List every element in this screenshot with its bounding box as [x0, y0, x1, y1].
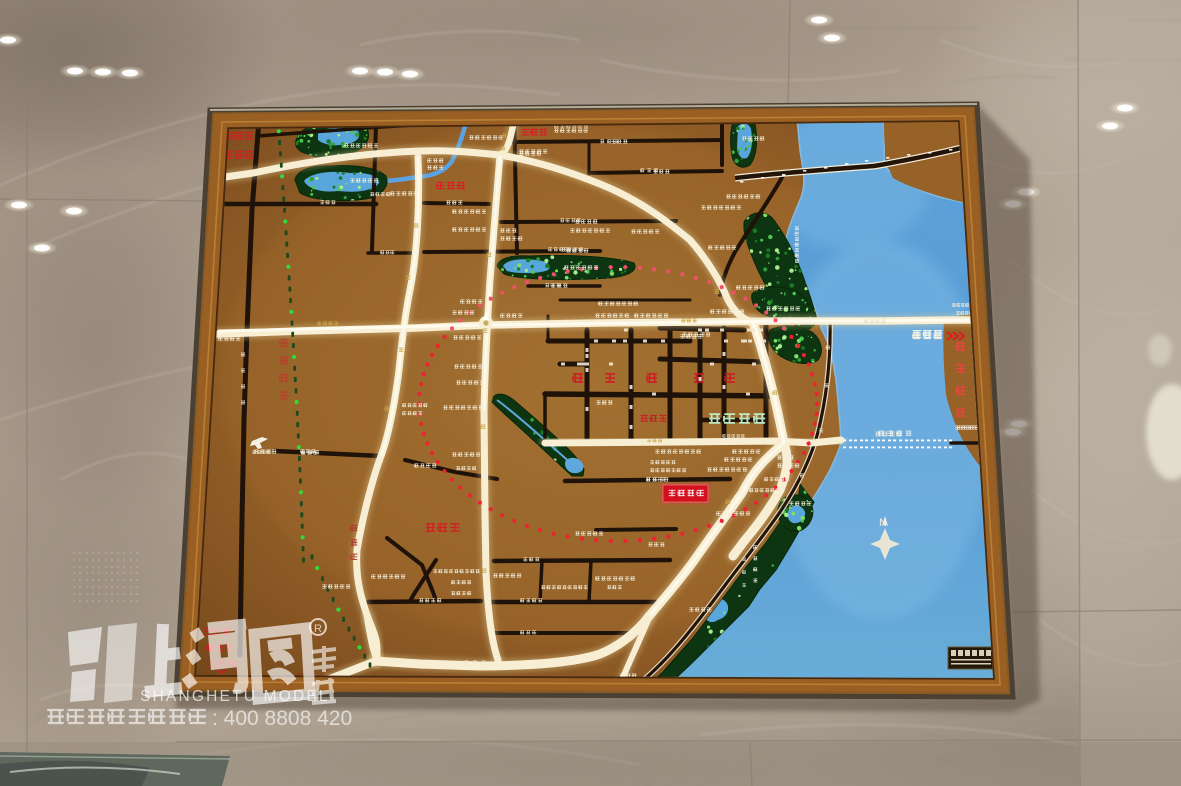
- svg-text:R: R: [314, 623, 322, 635]
- svg-text:N: N: [879, 517, 887, 529]
- svg-text:: 400 8808 420: : 400 8808 420: [212, 707, 352, 730]
- svg-text:SHANGHETU MODEL: SHANGHETU MODEL: [140, 688, 330, 705]
